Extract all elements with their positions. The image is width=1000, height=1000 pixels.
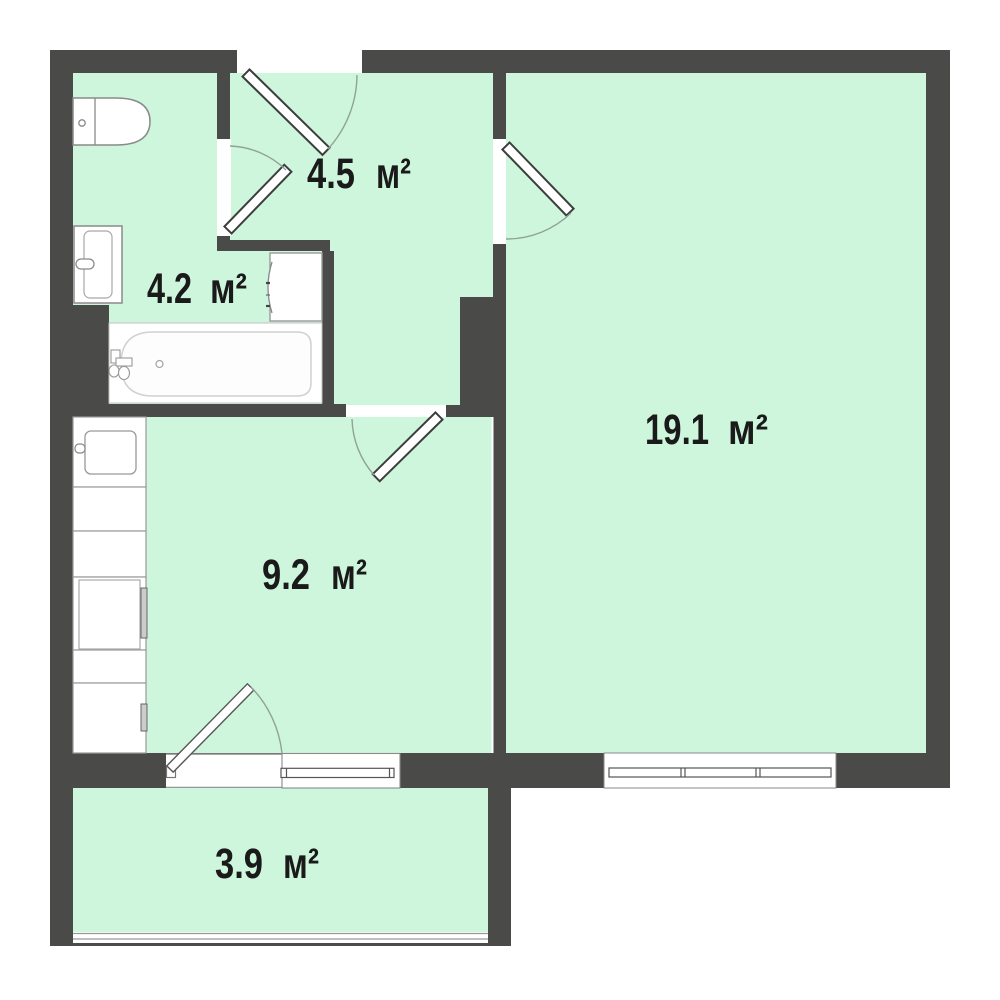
svg-text:м²: м² [376, 150, 411, 198]
svg-text:4.5: 4.5 [307, 150, 355, 198]
svg-text:м²: м² [283, 840, 319, 888]
svg-text:19.1: 19.1 [645, 406, 709, 454]
svg-text:4.2: 4.2 [147, 265, 192, 313]
svg-text:м²: м² [210, 265, 247, 313]
svg-text:м²: м² [728, 406, 768, 454]
svg-text:3.9: 3.9 [215, 840, 263, 888]
svg-text:9.2: 9.2 [262, 551, 310, 599]
svg-text:м²: м² [331, 551, 367, 599]
